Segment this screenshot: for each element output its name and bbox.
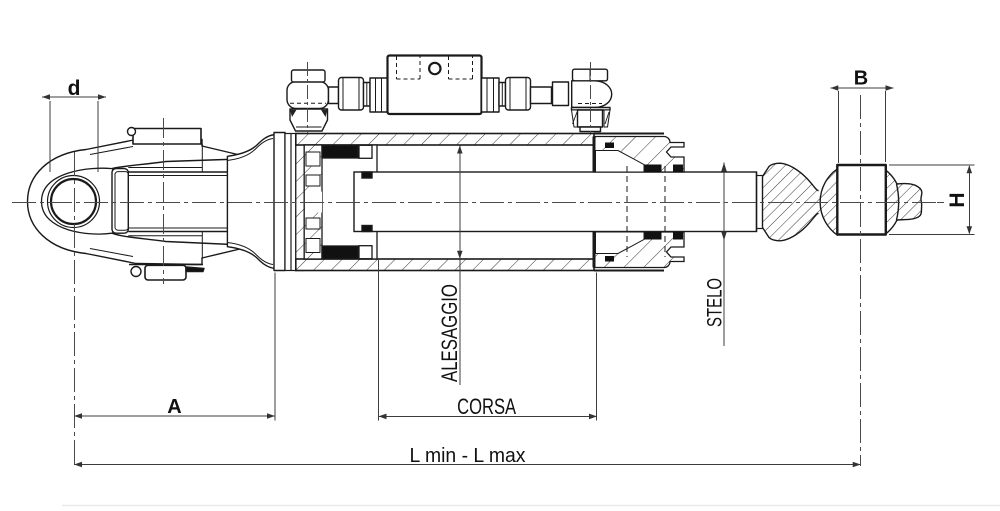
svg-text:H: H — [946, 192, 969, 207]
svg-text:B: B — [854, 68, 868, 90]
svg-text:A: A — [167, 396, 181, 418]
svg-text:d: d — [68, 77, 81, 100]
svg-text:ALESAGGIO: ALESAGGIO — [437, 284, 462, 382]
svg-text:STELO: STELO — [704, 278, 727, 327]
svg-text:CORSA: CORSA — [457, 394, 516, 419]
svg-text:L min - L max: L min - L max — [410, 445, 526, 467]
